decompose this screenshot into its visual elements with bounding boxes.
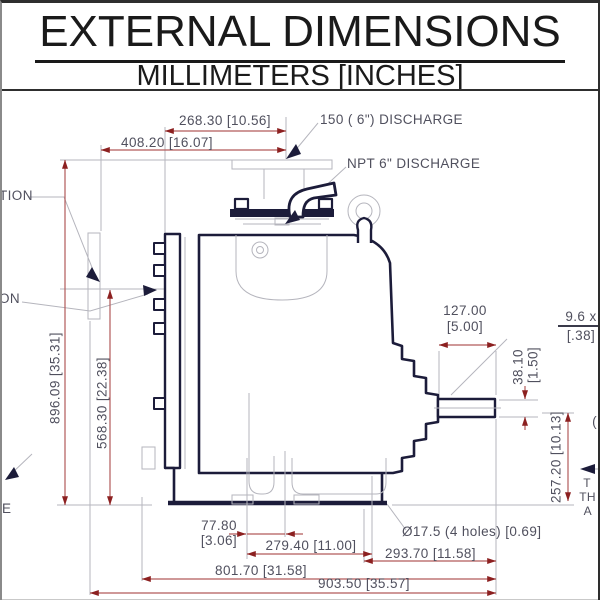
callout-suction-fragment-bottom: ON xyxy=(0,291,20,306)
dim-overall-length: 903.50 [35.57] xyxy=(304,576,424,591)
callout-suction-fragment-top: TION xyxy=(0,188,33,203)
right-edge-arrow xyxy=(580,464,595,474)
cover-lug-right xyxy=(319,199,332,209)
dim-top-268: 268.30 [10.56] xyxy=(162,113,288,128)
lifting-eyebolt xyxy=(357,218,371,243)
dim-shaft-len-in: [5.00] xyxy=(430,319,500,334)
suction-flange xyxy=(165,234,180,468)
dim-keyway-in: [.38] xyxy=(558,328,600,343)
base-left xyxy=(165,468,174,501)
callout-discharge-flange: 150 ( 6") DISCHARGE xyxy=(320,112,463,127)
pump-body xyxy=(199,235,438,473)
dim-body-length: 801.70 [31.58] xyxy=(201,563,321,578)
fragment-paren: ( xyxy=(592,414,597,429)
dim-shaft-len-mm: 127.00 xyxy=(430,303,500,318)
fragment-right-3: A xyxy=(584,504,592,518)
callout-discharge-npt: NPT 6" DISCHARGE xyxy=(347,156,480,171)
dim-foot-mm: 77.80 xyxy=(194,518,244,533)
callout-bolt-holes: Ø17.5 (4 holes) [0.69] xyxy=(402,524,541,539)
dim-height-suction: 568.30 [22.38] xyxy=(95,357,110,449)
dim-keyway-mm: 9.6 x xyxy=(558,309,600,327)
flange-bolts xyxy=(154,243,165,409)
cover-lug-left xyxy=(235,199,248,209)
suction-bottom-arrow xyxy=(143,285,157,296)
dim-shaft-cl-height: 257.20 [10.13] xyxy=(549,411,564,503)
dim-shaft-dia-in: [1.50] xyxy=(526,347,541,383)
fragment-left-e: E xyxy=(2,501,11,516)
dim-top-408: 408.20 [16.07] xyxy=(104,135,230,150)
dim-height-overall: 896.09 [35.31] xyxy=(48,332,63,424)
dim-shaft-dia-mm: 38.10 xyxy=(511,349,526,385)
fragment-right-2: TH xyxy=(579,490,596,504)
dim-bearing-overhang: 293.70 [11.58] xyxy=(385,546,476,561)
pump-drawing xyxy=(2,3,600,600)
dim-foot-spacing: 279.40 [11.00] xyxy=(251,538,371,553)
dim-foot-in: [3.06] xyxy=(194,533,244,548)
cover-bar xyxy=(230,209,334,217)
dim-keyway: 9.6 x [.38] xyxy=(558,309,600,343)
pump-outline xyxy=(154,183,495,503)
drawing-sheet: EXTERNAL DIMENSIONS MILLIMETERS [INCHES] xyxy=(0,0,600,600)
fragment-right-1: T xyxy=(583,476,591,490)
